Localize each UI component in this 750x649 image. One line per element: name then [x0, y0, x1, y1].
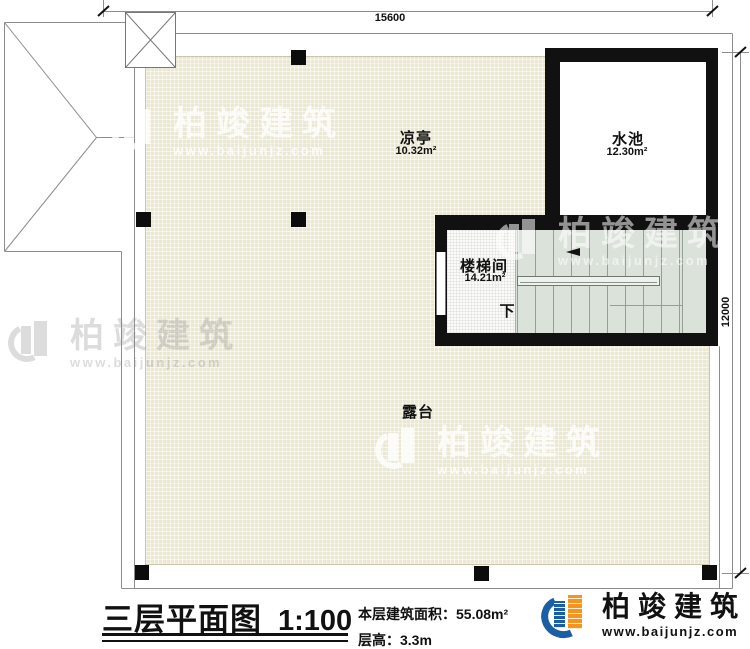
company-website: www.baijunjz.com [602, 625, 746, 638]
stair-landing-line [610, 305, 683, 306]
stair-direction-label: 下 [493, 300, 521, 321]
room-area-stairwell: 14.21m² [435, 272, 535, 284]
title-underline [102, 633, 348, 636]
room-area-pavilion: 10.32m² [366, 145, 466, 157]
plan-title: 三层平面图 [102, 602, 262, 637]
column-marker [291, 212, 306, 227]
stair-handrail [517, 276, 660, 286]
watermark-logo-icon [8, 316, 60, 372]
floor-height-line: 层高：3.3m [358, 630, 432, 649]
title-underline [102, 640, 348, 642]
floor-area-label: 本层建筑面积： [358, 606, 456, 622]
stair-tread-end-line [682, 230, 683, 333]
floor-area-line: 本层建筑面积：55.08m² [358, 604, 508, 624]
floor-plan-canvas: 柏竣建筑 www.baijunjz.com 柏竣建筑 www.baijunjz.… [0, 0, 750, 649]
floor-area-value: 55.08m² [456, 606, 508, 622]
company-logo-icon [541, 588, 595, 642]
column-marker [134, 565, 149, 580]
column-marker [702, 565, 717, 580]
room-label-terrace: 露台 [368, 401, 468, 422]
dimension-top-label: 15600 [355, 12, 425, 24]
floor-height-value: 3.3m [400, 632, 432, 648]
dimension-right-label: 12000 [720, 282, 734, 342]
company-logo: 柏竣建筑 www.baijunjz.com [541, 588, 746, 642]
company-name: 柏竣建筑 [602, 593, 746, 621]
room-area-pool: 12.30m² [577, 146, 677, 158]
floor-height-label: 层高： [358, 632, 400, 648]
column-marker [291, 50, 306, 65]
column-marker [474, 566, 489, 581]
stair-direction-arrow-icon [566, 248, 580, 256]
column-marker [136, 212, 151, 227]
